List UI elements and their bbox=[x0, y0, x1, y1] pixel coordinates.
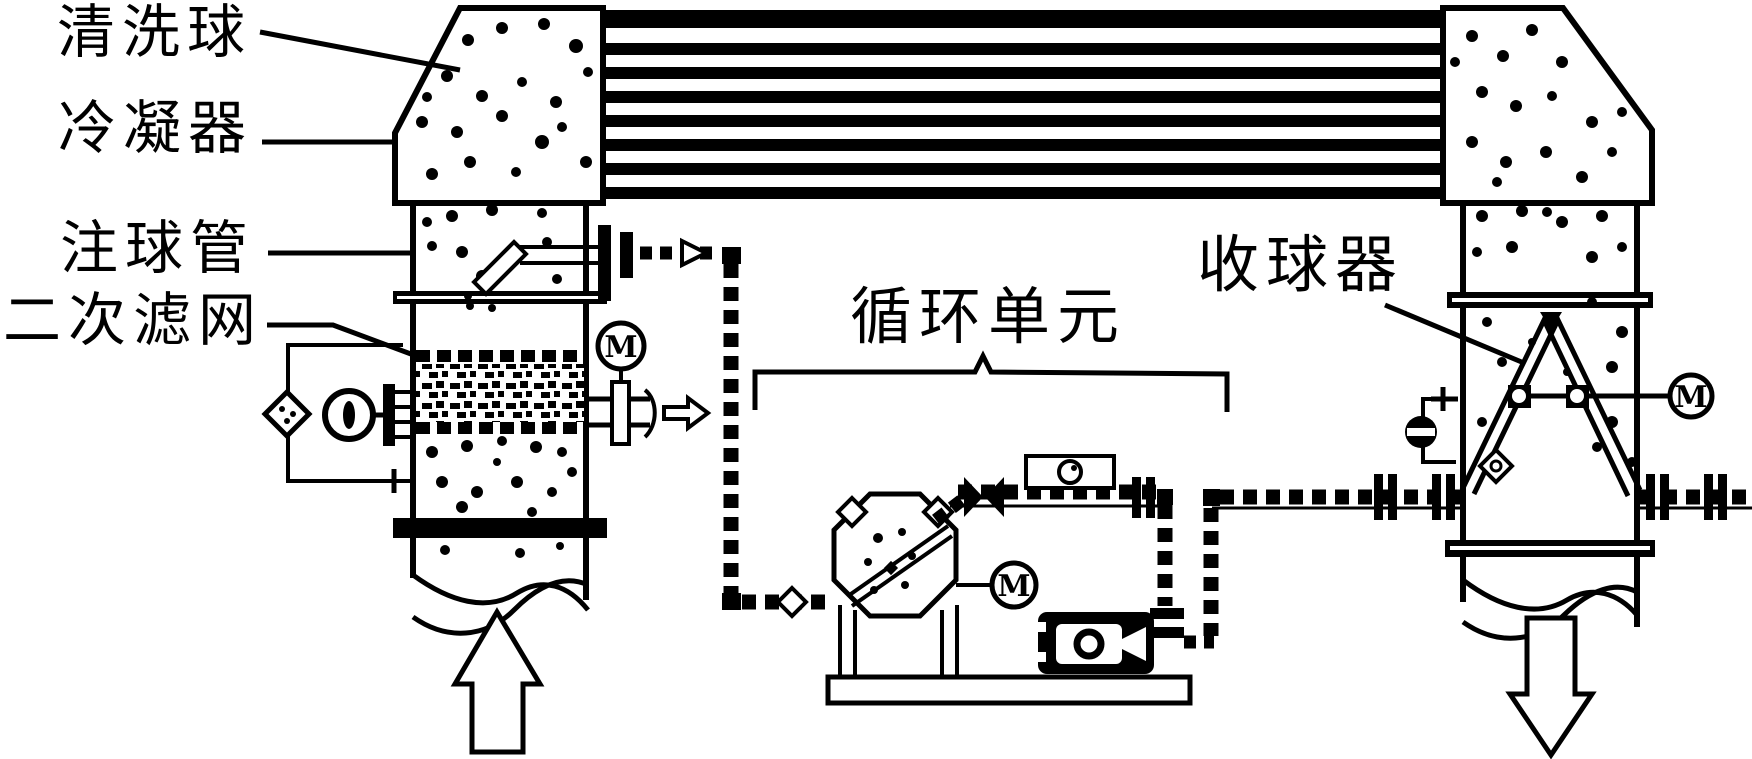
outlet-riser-pipe: M bbox=[1405, 203, 1712, 638]
label-condenser: 冷凝器 bbox=[58, 94, 398, 162]
wall-flange-comb bbox=[383, 384, 411, 446]
label-text: 注球管 bbox=[60, 214, 255, 282]
pipe-flange bbox=[1150, 608, 1184, 619]
injection-flange bbox=[598, 225, 611, 301]
pipe-flange bbox=[1388, 474, 1397, 520]
label-pointer bbox=[260, 32, 460, 70]
pipe-flange bbox=[1445, 540, 1655, 557]
label-circulation-unit: 循环单元 bbox=[755, 280, 1227, 412]
bowtie-valve-icon bbox=[964, 477, 983, 517]
inline-actuator-icon bbox=[1026, 456, 1114, 488]
label-cleaning-ball: 清洗球 bbox=[57, 0, 460, 70]
outlet-valve-icon bbox=[612, 382, 629, 444]
label-text: 循环单元 bbox=[850, 280, 1126, 353]
pipe-flange bbox=[1704, 474, 1713, 520]
secondary-filter-screen bbox=[416, 356, 584, 428]
vent-gauge-icon bbox=[1405, 387, 1458, 462]
ball-pipe-return-run bbox=[936, 456, 1462, 642]
circulation-unit: M bbox=[828, 494, 1190, 703]
pressure-gauge-icon bbox=[325, 391, 383, 439]
flow-arrow-right-icon bbox=[664, 398, 708, 428]
label-ball-injection-pipe: 注球管 bbox=[60, 214, 412, 282]
pipe-flange bbox=[1718, 474, 1727, 520]
pipe-flange bbox=[393, 291, 607, 304]
ball-pipe-outlet-run bbox=[1640, 474, 1752, 520]
gauge-letter: M bbox=[1674, 380, 1707, 415]
pump-motor bbox=[1038, 612, 1154, 674]
pipe-flange bbox=[1150, 627, 1184, 638]
filter-instrument-loop bbox=[265, 345, 413, 493]
waterbox-left bbox=[395, 8, 603, 203]
pipe-fitting-icon bbox=[778, 588, 806, 616]
label-pointer bbox=[1385, 305, 1524, 363]
pipe-flange bbox=[393, 518, 607, 538]
balls-dots-lower bbox=[426, 436, 577, 558]
pipe-flange bbox=[1132, 477, 1141, 518]
injection-flange bbox=[620, 232, 633, 278]
sampler-diamond-icon bbox=[265, 392, 309, 436]
diagram-page: M bbox=[0, 0, 1752, 759]
label-text: 收球器 bbox=[1197, 228, 1404, 301]
gauge-m-circulation-icon: M bbox=[956, 563, 1036, 607]
circulation-unit-brace bbox=[755, 356, 1227, 412]
gauge-letter: M bbox=[997, 569, 1030, 604]
bowtie-valve-icon bbox=[985, 477, 1004, 517]
check-valve-icon bbox=[682, 241, 706, 265]
ball-pipe-injection-run bbox=[640, 241, 832, 616]
pipe-flange bbox=[1446, 474, 1455, 520]
cleaning-system-diagram: M bbox=[0, 0, 1752, 759]
pipe-flange bbox=[1660, 474, 1669, 520]
gauge-m-collector-icon: M bbox=[1670, 375, 1712, 417]
waterbox-right bbox=[1443, 8, 1652, 203]
pipe-flange bbox=[1447, 292, 1653, 308]
label-text: 二次滤网 bbox=[3, 286, 263, 354]
pipe-flange bbox=[1374, 474, 1383, 520]
gauge-letter: M bbox=[604, 330, 637, 365]
label-text: 清洗球 bbox=[57, 0, 252, 66]
pipe-flange bbox=[1146, 477, 1155, 518]
condenser-tube-bundle bbox=[603, 10, 1443, 199]
filter-outlet: M bbox=[586, 323, 708, 444]
pipe-flange bbox=[1646, 474, 1655, 520]
pipe-flange bbox=[1432, 474, 1441, 520]
label-text: 冷凝器 bbox=[58, 94, 253, 162]
gauge-m-filter-icon: M bbox=[598, 323, 644, 369]
